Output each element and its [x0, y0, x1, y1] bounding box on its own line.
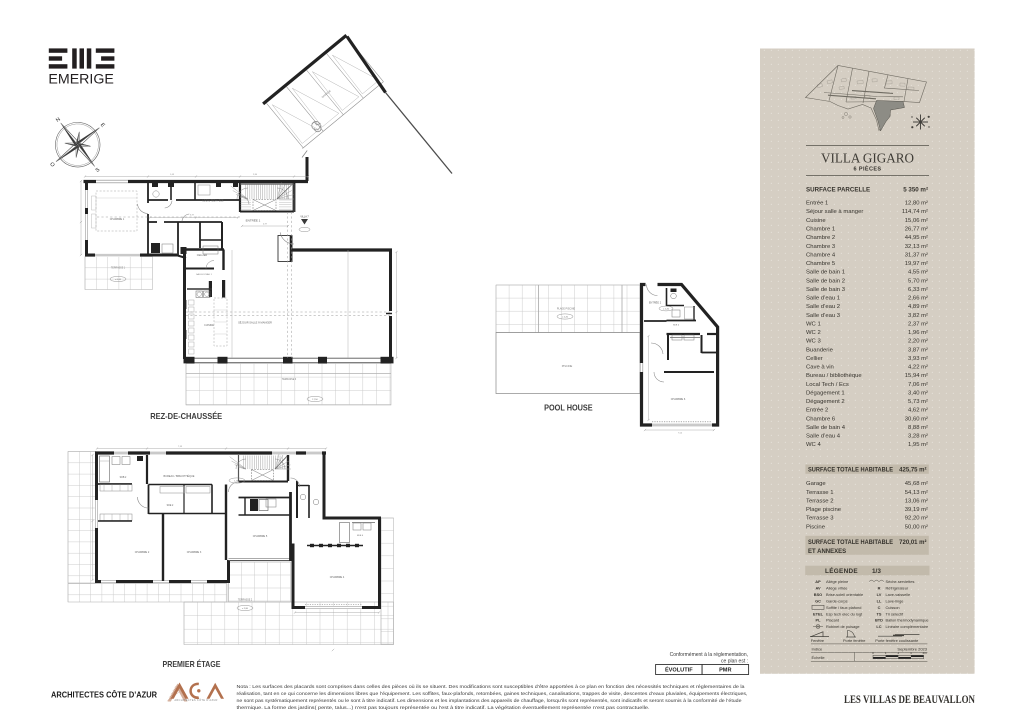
svg-text:ne sont pas systématiquement r: ne sont pas systématiquement représentés… — [237, 698, 742, 704]
svg-text:réalisation, tant en ce qui co: réalisation, tant en ce qui concerne les… — [237, 691, 748, 697]
svg-text:thermique. La forme des jardin: thermique. La forme des jardins( pente, … — [237, 705, 650, 711]
svg-text:ARCHITECTES CÔTE D’AZUR: ARCHITECTES CÔTE D’AZUR — [51, 688, 157, 699]
svg-text:Nota : Les surfaces des placar: Nota : Les surfaces des placards sont co… — [237, 684, 745, 690]
svg-text:PMR: PMR — [719, 668, 731, 674]
svg-text:Conformément à la réglementati: Conformément à la réglementation, — [670, 652, 748, 658]
svg-text:ÉVOLUTIF: ÉVOLUTIF — [665, 666, 693, 674]
svg-text:LES VILLAS DE BEAUVALLON: LES VILLAS DE BEAUVALLON — [844, 693, 975, 706]
svg-text:ce plan est :: ce plan est : — [721, 658, 748, 664]
